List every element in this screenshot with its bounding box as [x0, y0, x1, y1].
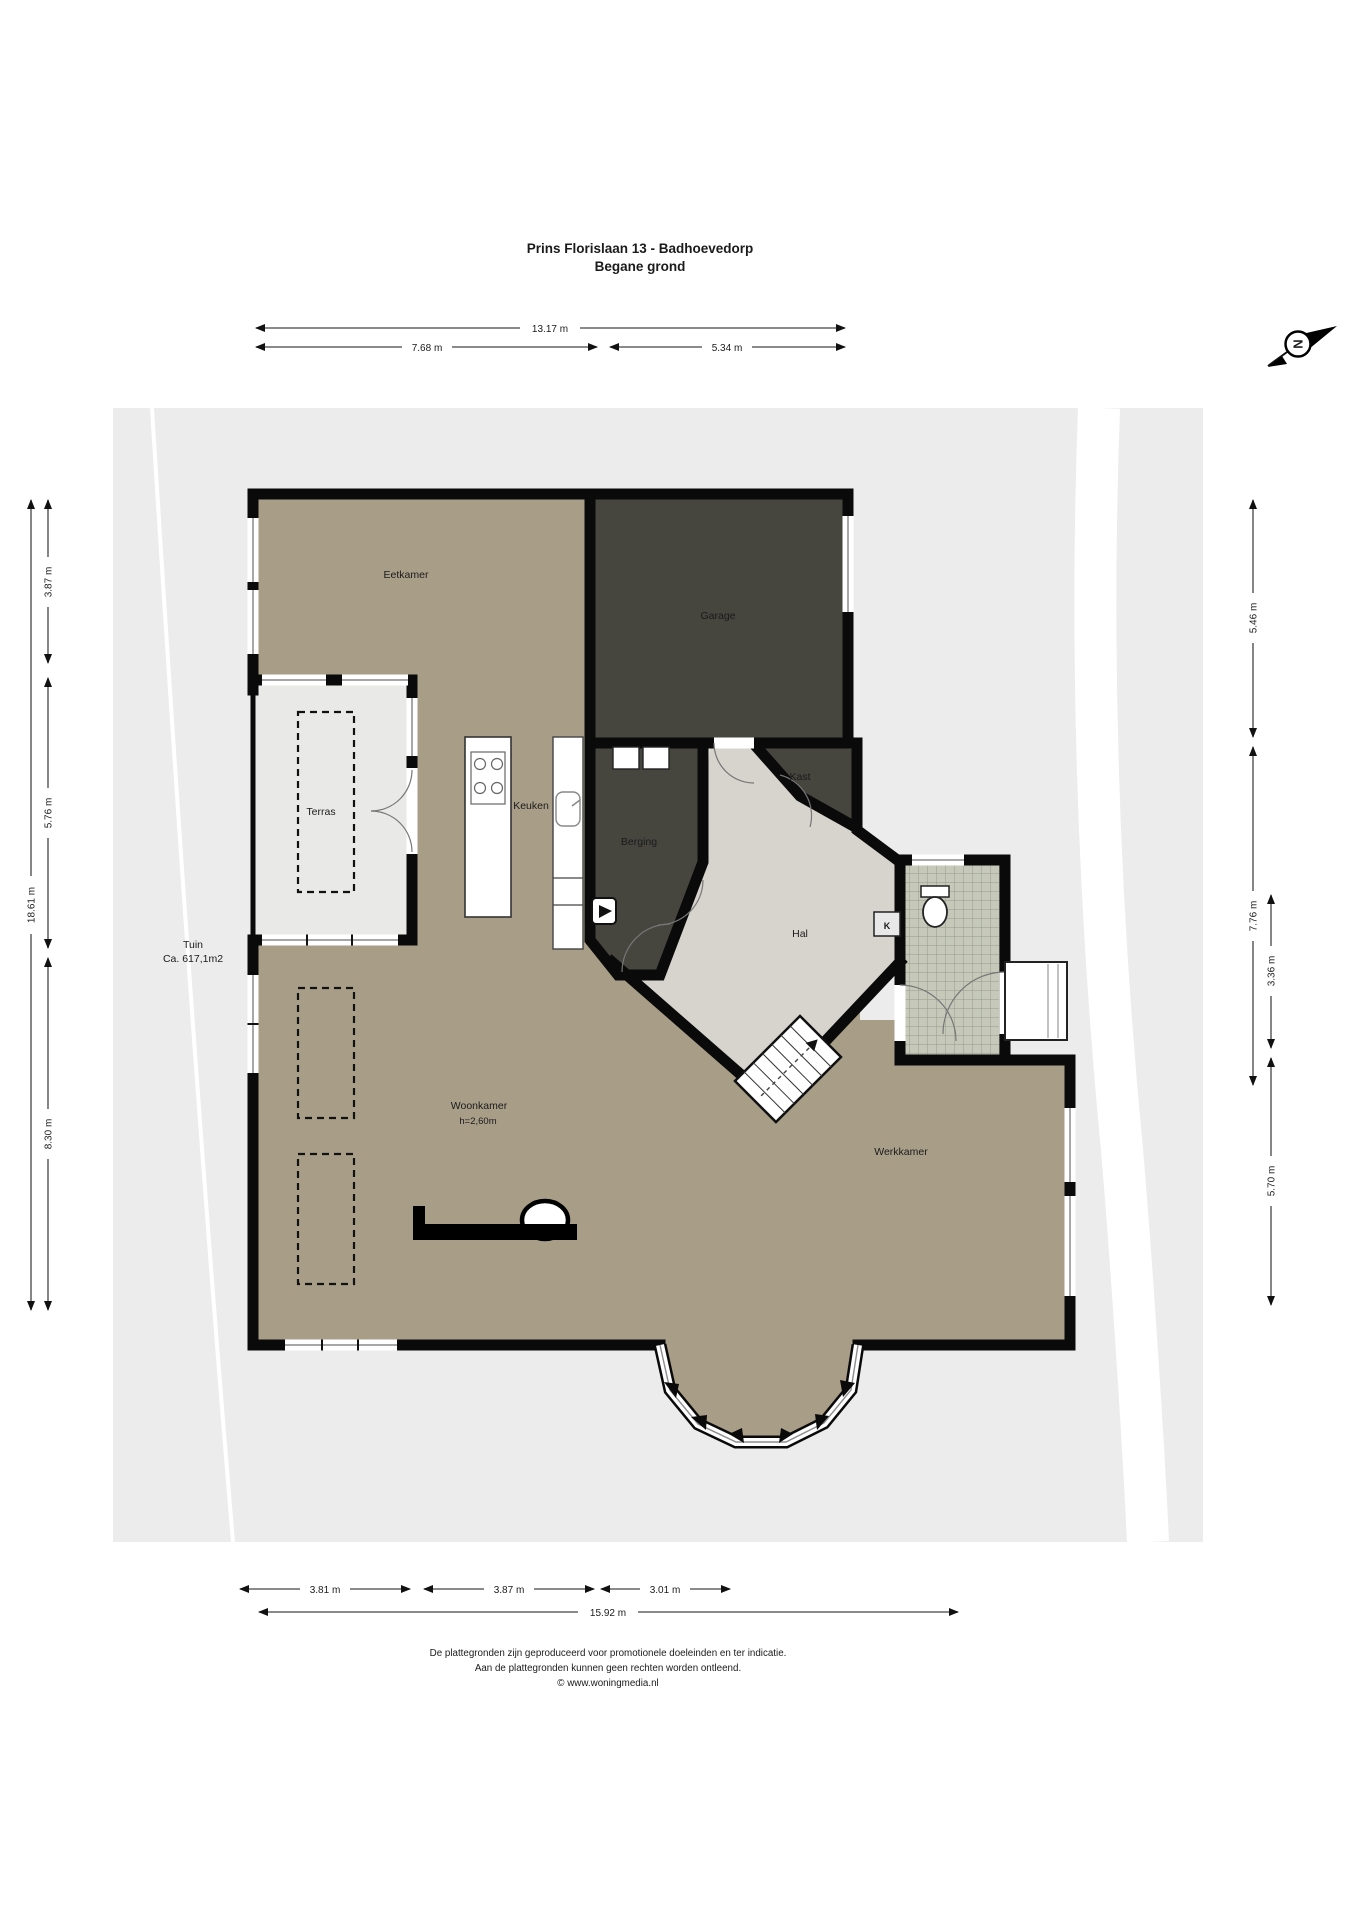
label-terras: Terras: [306, 806, 335, 818]
window-werkkamer-right-1: [1065, 1108, 1076, 1182]
label-woonkamer-height: h=2,60m: [459, 1116, 496, 1127]
window-eetkamer-left-2: [248, 590, 259, 654]
window-terras-top-1: [262, 675, 326, 686]
label-garage: Garage: [700, 610, 735, 622]
window-terras-top-2: [342, 675, 408, 686]
dim-left-bottom: 8.30 m: [44, 1119, 55, 1150]
page-subtitle: Begane grond: [595, 259, 686, 274]
dim-right-top: 5.46 m: [1249, 603, 1260, 634]
footer: De plattegronden zijn geproduceerd voor …: [430, 1648, 787, 1689]
dim-top-right: 5.34 m: [712, 343, 743, 354]
label-berging: Berging: [621, 836, 657, 848]
kitchen-counter: [553, 737, 583, 949]
label-eetkamer: Eetkamer: [384, 569, 429, 581]
footer-line3: © www.woningmedia.nl: [557, 1678, 658, 1689]
boiler-icon: [592, 898, 616, 924]
dim-bottom-seg1: 3.81 m: [310, 1585, 341, 1596]
dim-top-left: 7.68 m: [412, 343, 443, 354]
kitchen-island: [465, 737, 511, 917]
window-keuken-terras: [407, 698, 418, 756]
dim-right-inner-bottom: 5.70 m: [1267, 1166, 1278, 1197]
dim-bottom-seg2: 3.87 m: [494, 1585, 525, 1596]
label-werkkamer: Werkkamer: [874, 1146, 928, 1158]
label-woonkamer: Woonkamer: [451, 1100, 508, 1112]
window-woonkamer-left: [248, 975, 259, 1073]
dim-left-middle: 5.76 m: [44, 798, 55, 829]
label-keuken: Keuken: [513, 800, 549, 812]
window-woonkamer-terras: [262, 935, 398, 946]
dim-bottom-seg3: 3.01 m: [650, 1585, 681, 1596]
floorplan-canvas: K: [0, 0, 1358, 1920]
toilet-icon: [921, 886, 949, 927]
label-kast: Kast: [789, 771, 810, 783]
entrance-porch: [1005, 962, 1067, 1040]
window-entree-top: [912, 855, 964, 866]
dim-right-middle: 7.76 m: [1249, 901, 1260, 932]
entree-room: [900, 860, 1005, 1060]
footer-line1: De plattegronden zijn geproduceerd voor …: [430, 1648, 787, 1659]
dim-left-top: 3.87 m: [44, 567, 55, 598]
dryer-icon: [643, 747, 669, 769]
page-title: Prins Florislaan 13 - Badhoevedorp: [527, 241, 754, 256]
window-werkkamer-right-2: [1065, 1196, 1076, 1296]
sink-icon: [556, 792, 580, 826]
compass-north-letter: N: [1291, 339, 1306, 348]
label-tuin-area: Ca. 617,1m2: [163, 953, 223, 965]
dim-bottom-total: 15.92 m: [590, 1608, 626, 1619]
label-tuin: Tuin: [183, 939, 203, 951]
eetkamer-floor: [253, 494, 590, 684]
dim-left-total: 18.61 m: [27, 887, 38, 923]
compass: N: [1268, 326, 1337, 367]
dim-top-total: 13.17 m: [532, 324, 568, 335]
meterkast-label: K: [884, 921, 891, 931]
meterkast-box: K: [874, 912, 900, 936]
footer-line2: Aan de plattegronden kunnen geen rechten…: [475, 1663, 741, 1674]
window-woonkamer-bottom: [285, 1340, 397, 1351]
window-garage-right: [843, 516, 854, 612]
label-hal: Hal: [792, 928, 808, 940]
washer-icon: [613, 747, 639, 769]
compass-fletch: [1268, 356, 1287, 367]
dim-right-inner-top: 3.36 m: [1267, 956, 1278, 987]
window-eetkamer-left-1: [248, 518, 259, 582]
